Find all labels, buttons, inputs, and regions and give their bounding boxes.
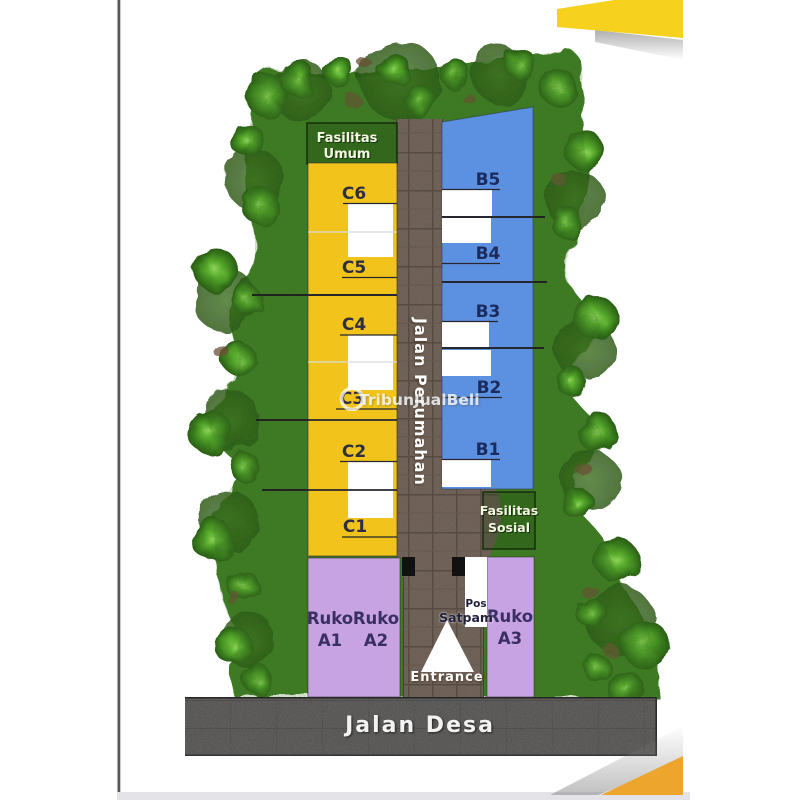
accent-top-right xyxy=(557,0,683,38)
watermark-text: TribunJualBeli xyxy=(359,391,480,409)
gate-pillar-left xyxy=(402,557,415,576)
block-c-driveways xyxy=(348,204,393,519)
block-b: B5 B4 B3 B2 B1 xyxy=(442,107,533,489)
label-b2: B2 xyxy=(477,378,502,398)
label-ruko-a1-unit: A1 xyxy=(318,631,342,650)
label-b3: B3 xyxy=(476,302,501,322)
page-left-border xyxy=(118,0,121,792)
label-ruko-a1-name: Ruko xyxy=(307,609,353,628)
label-fasilitas-sosial-2: Sosial xyxy=(488,520,530,535)
block-c: C6 C5 C4 C3 C2 C1 xyxy=(308,163,397,556)
label-ruko-a3-name: Ruko xyxy=(487,607,533,626)
label-b4: B4 xyxy=(476,244,501,264)
label-c4: C4 xyxy=(342,315,366,335)
label-jalan-desa: Jalan Desa xyxy=(343,713,495,738)
label-pos: Pos xyxy=(465,598,486,610)
label-c2: C2 xyxy=(342,442,366,462)
label-ruko-a2-name: Ruko xyxy=(353,609,399,628)
page-footer-strip xyxy=(117,792,690,800)
label-fasilitas-sosial-1: Fasilitas xyxy=(480,503,538,518)
label-fasilitas-umum-1: Fasilitas xyxy=(317,131,378,146)
site-plan: C6 C5 C4 C3 C2 C1 B5 B4 B3 B2 B1 xyxy=(0,0,800,800)
label-c6: C6 xyxy=(342,184,366,204)
block-ruko-a3: Ruko A3 xyxy=(487,557,534,697)
label-b5: B5 xyxy=(476,170,501,190)
label-b1: B1 xyxy=(476,440,501,460)
label-ruko-a3-unit: A3 xyxy=(498,629,522,648)
block-ruko-a1-a2: Ruko A1 Ruko A2 xyxy=(307,558,400,697)
label-fasilitas-umum-2: Umum xyxy=(324,147,371,162)
watermark: TribunJualBeli xyxy=(342,389,480,410)
label-c5: C5 xyxy=(342,258,366,278)
label-ruko-a2-unit: A2 xyxy=(364,631,388,650)
label-entrance: Entrance xyxy=(410,670,483,685)
gate-pillar-right xyxy=(452,557,465,576)
label-c1: C1 xyxy=(343,517,367,537)
